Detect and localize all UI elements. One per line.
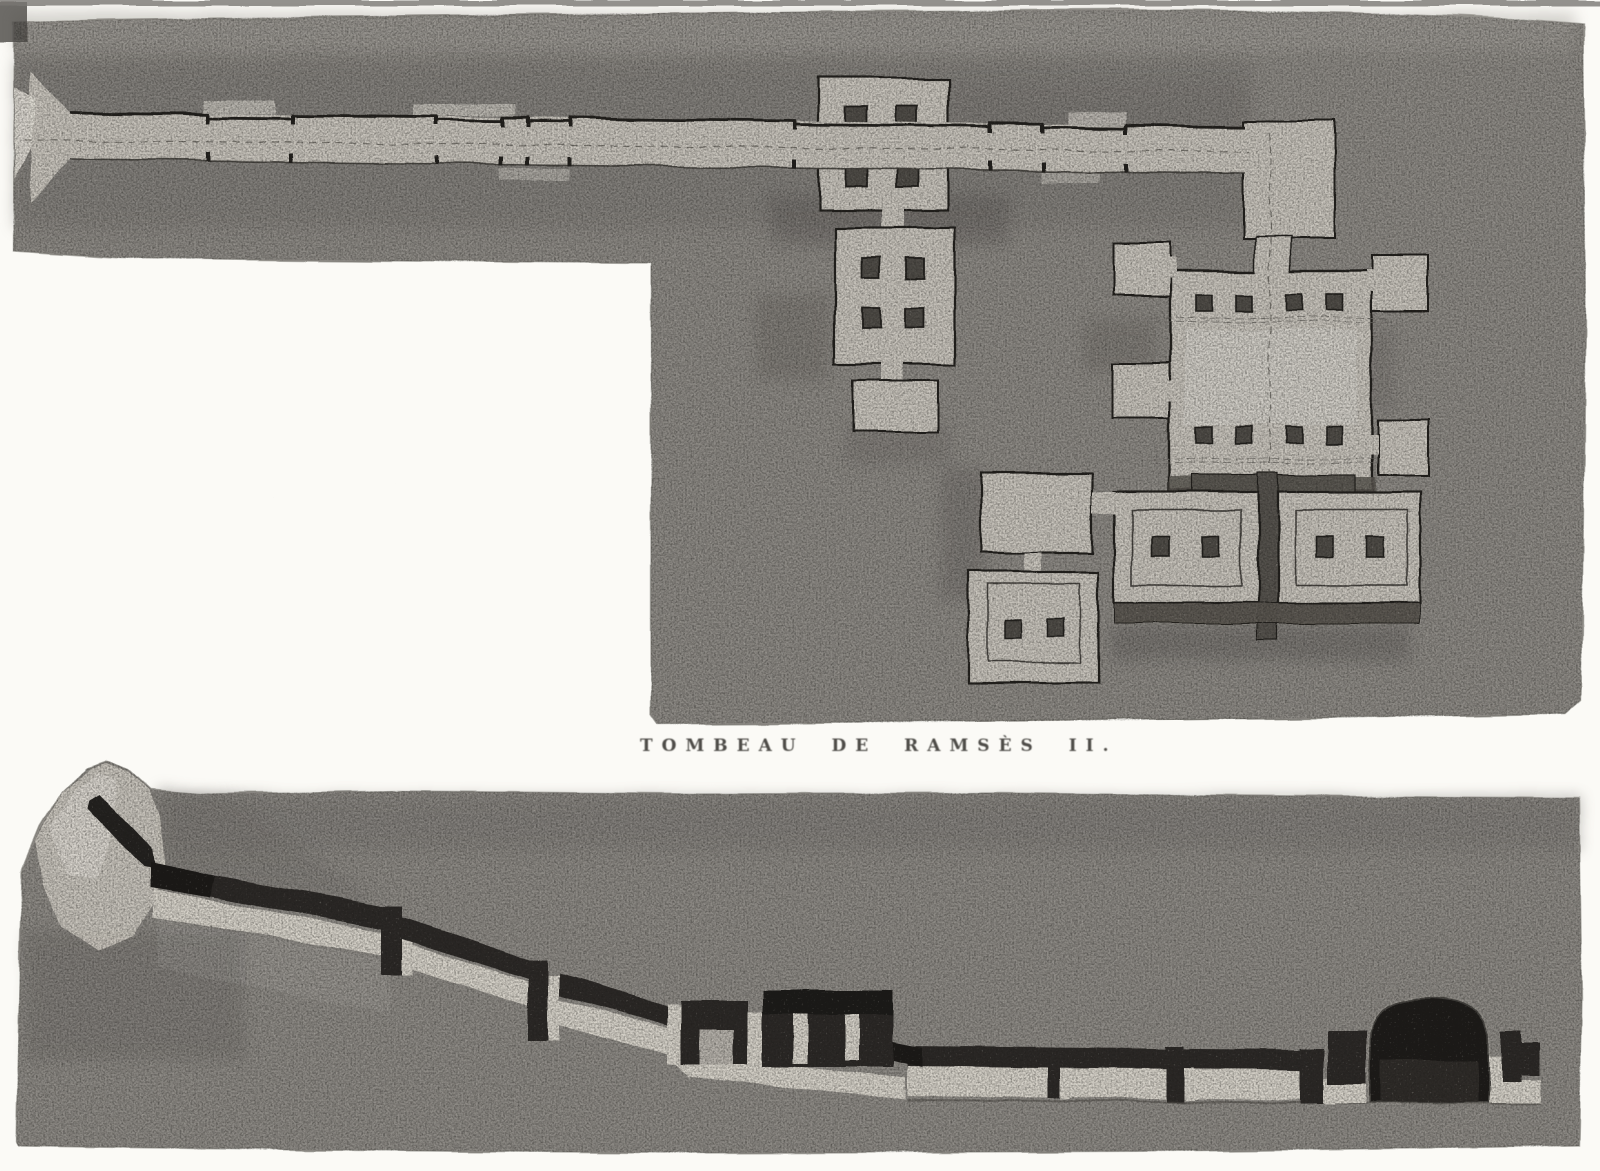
plate-engraving: [0, 0, 1600, 1171]
engraved-plate: TOMBEAU DE RAMSÈS II.: [0, 0, 1600, 1171]
plate-caption: TOMBEAU DE RAMSÈS II.: [640, 736, 1060, 756]
page-specks: [0, 0, 1600, 1171]
